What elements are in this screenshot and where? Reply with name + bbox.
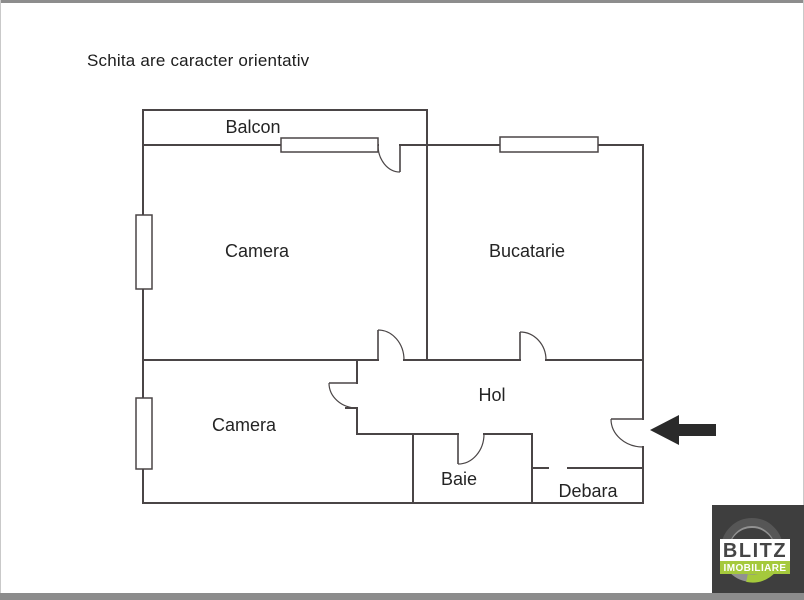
bottom-bar: [0, 593, 804, 600]
windows: [136, 137, 598, 469]
doors: [329, 145, 643, 464]
agency-logo: BLITZ IMOBILIARE: [712, 505, 804, 600]
interior-walls: [143, 145, 643, 503]
door-bucatarie: [520, 332, 546, 360]
room-label-baie: Baie: [441, 469, 477, 489]
door-balcony: [378, 145, 400, 172]
room-label-balcon: Balcon: [225, 117, 280, 137]
room-label-hol: Hol: [478, 385, 505, 405]
room-label-bucatarie: Bucatarie: [489, 241, 565, 261]
window-camera1: [136, 215, 152, 289]
door-baie: [458, 434, 484, 464]
room-label-camera-2: Camera: [212, 415, 277, 435]
logo-subtext: IMOBILIARE: [724, 563, 787, 574]
floor-plan-drawing: Balcon Camera Bucatarie Camera Hol Baie …: [0, 0, 804, 600]
room-label-debara: Debara: [558, 481, 618, 501]
room-label-camera-1: Camera: [225, 241, 290, 261]
window-camera2: [136, 398, 152, 469]
logo-text: BLITZ: [723, 540, 787, 562]
door-camera1: [378, 330, 404, 360]
floorplan-image: Schita are caracter orientativ: [0, 0, 804, 600]
window-balcony: [281, 138, 378, 152]
entrance-arrow-icon: [650, 415, 716, 445]
exterior-walls: [143, 110, 643, 503]
door-entrance: [611, 419, 643, 447]
wall-camera2-hol: [346, 360, 357, 434]
window-bucatarie: [500, 137, 598, 152]
door-camera2: [329, 383, 357, 408]
